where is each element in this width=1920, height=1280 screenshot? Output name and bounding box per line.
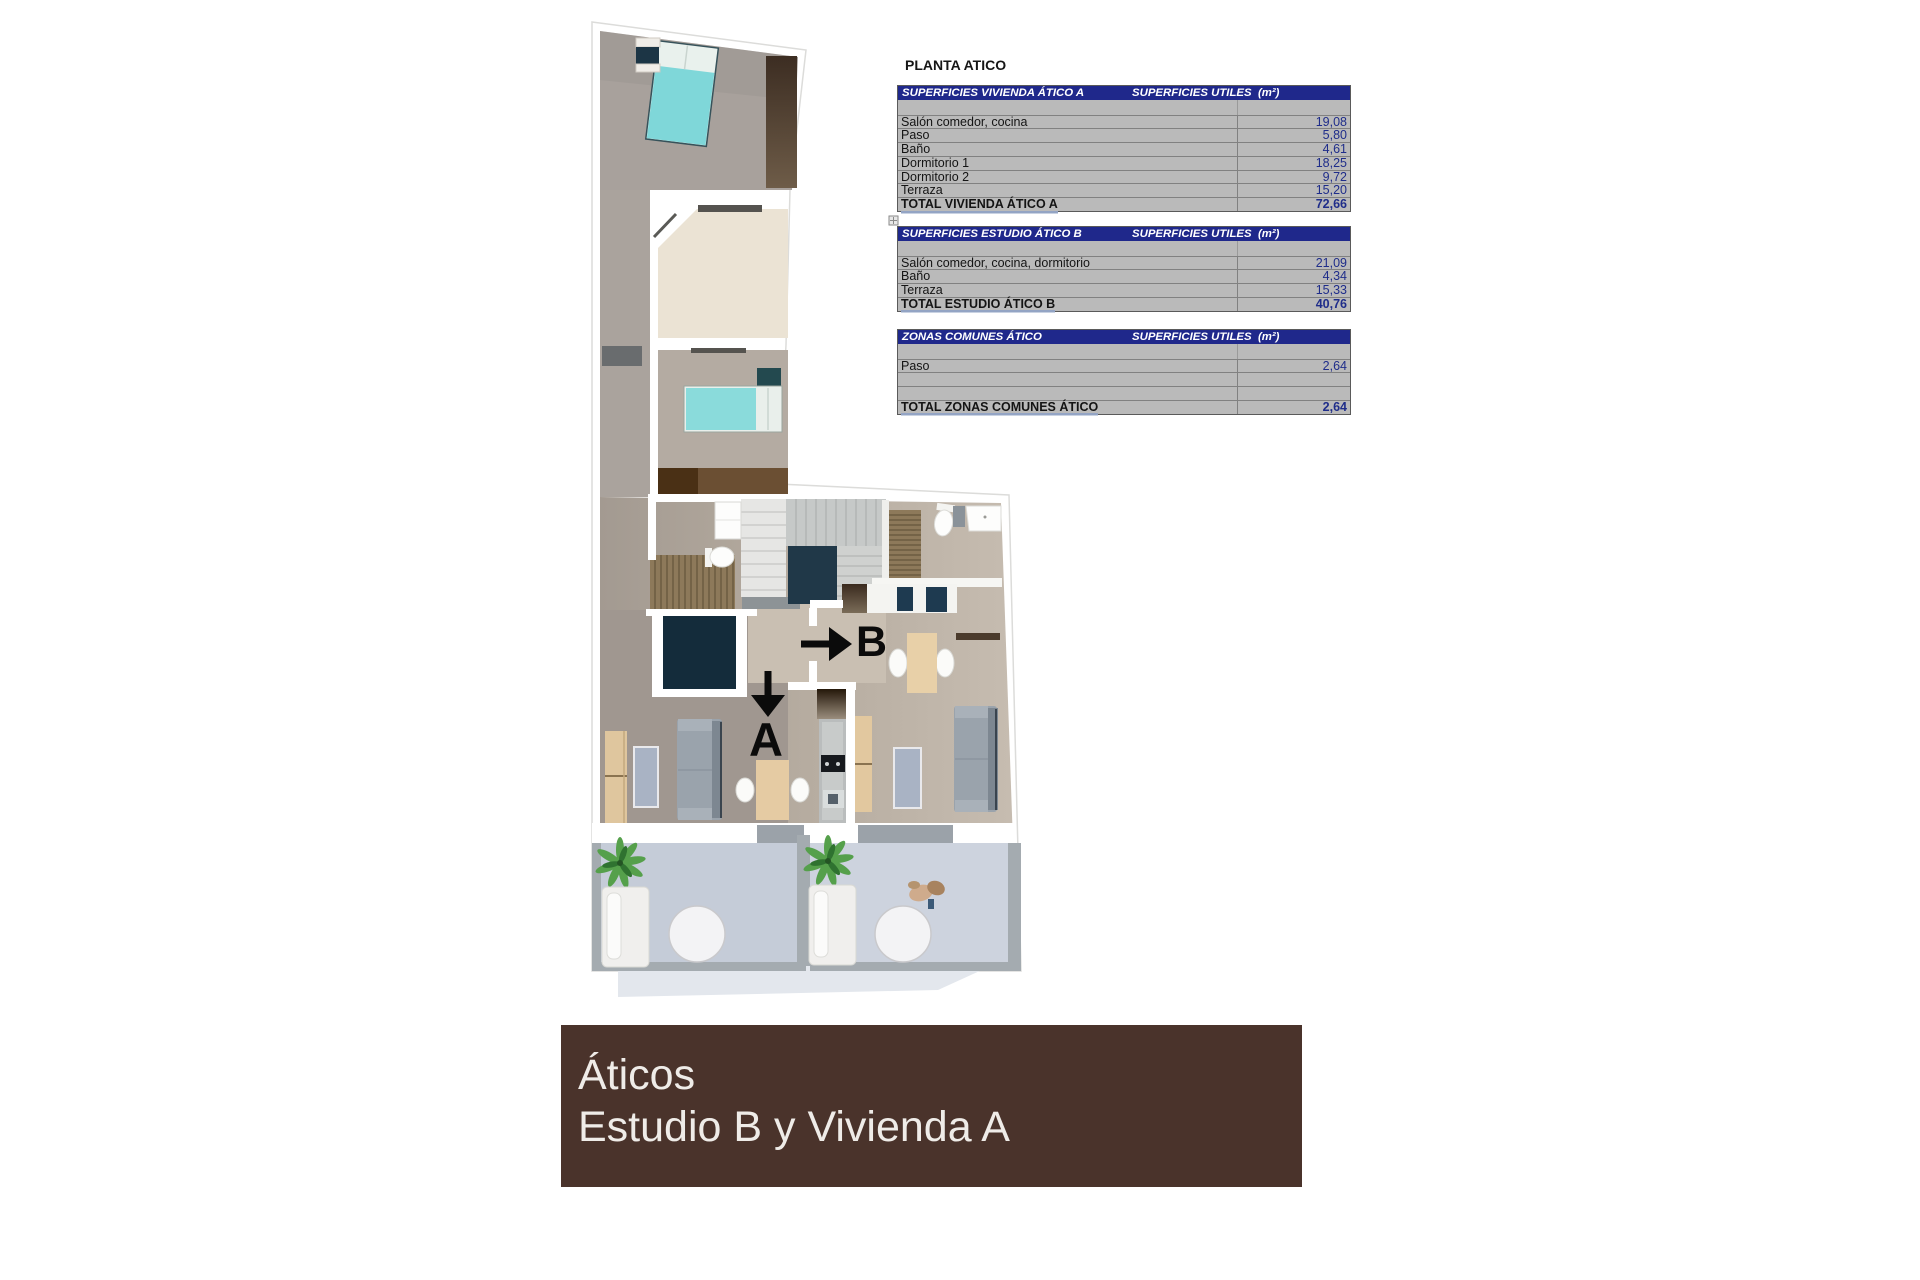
svg-text:B: B [856,618,887,666]
svg-text:A: A [749,713,783,766]
